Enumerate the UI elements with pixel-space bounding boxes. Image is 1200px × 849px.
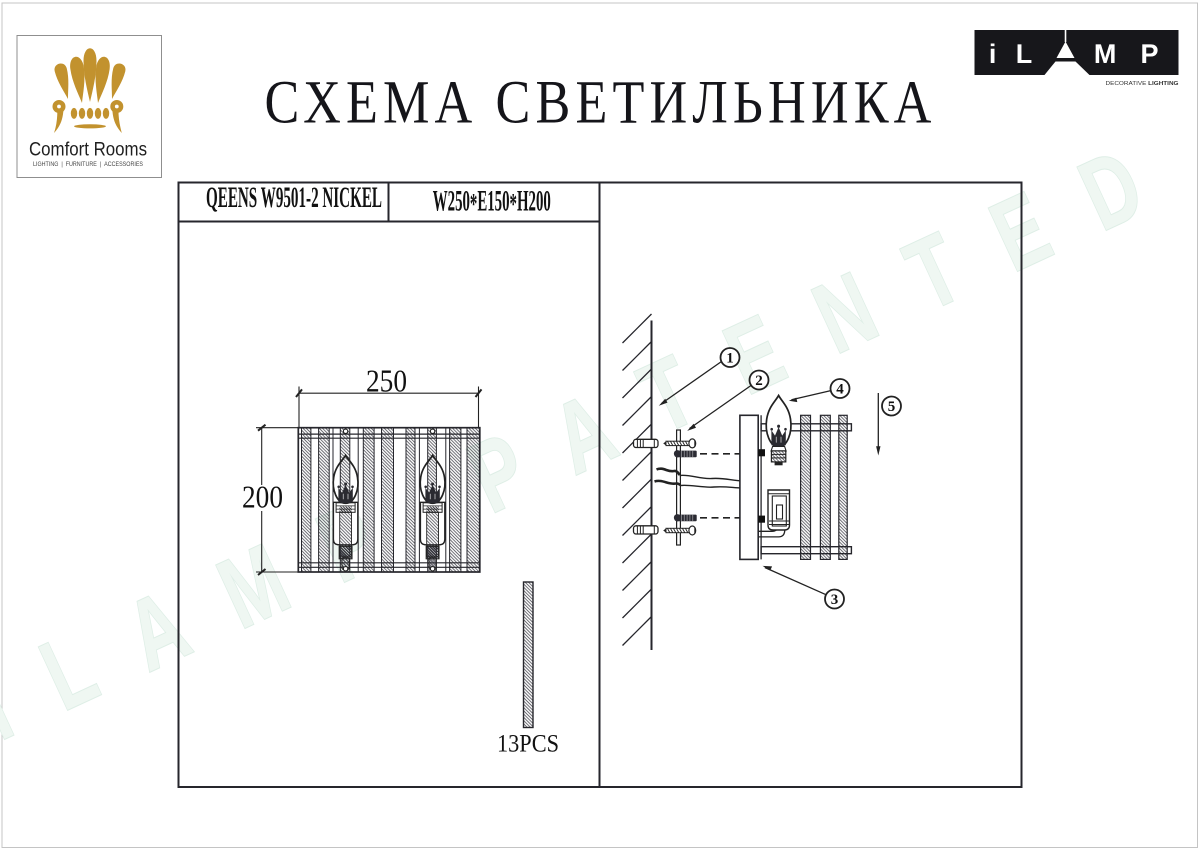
svg-text:13PCS: 13PCS (497, 729, 559, 758)
svg-text:W250*E150*H200: W250*E150*H200 (433, 185, 551, 221)
svg-text:Comfort Rooms: Comfort Rooms (29, 140, 147, 161)
svg-text:LIGHTING | FURNITURE | ACC: LIGHTING | FURNITURE | ACCESSORIES (33, 161, 143, 168)
svg-text:L: L (1016, 39, 1033, 69)
svg-text:200: 200 (242, 479, 283, 515)
svg-text:5: 5 (888, 399, 896, 415)
svg-text:3: 3 (831, 592, 839, 608)
svg-text:4: 4 (836, 382, 844, 398)
svg-text:QEENS W9501-2 NICKEL: QEENS W9501-2 NICKEL (206, 181, 382, 214)
svg-text:DECORATIVE LIGHTING: DECORATIVE LIGHTING (1106, 81, 1180, 87)
svg-text:1: 1 (726, 351, 734, 367)
svg-text:i: i (989, 39, 997, 69)
svg-text:2: 2 (755, 373, 763, 389)
svg-text:P: P (1140, 39, 1158, 69)
svg-text:M: M (1094, 39, 1117, 69)
svg-text:250: 250 (366, 363, 407, 399)
svg-text:СХЕМА СВЕТИЛЬНИКА: СХЕМА СВЕТИЛЬНИКА (265, 70, 937, 137)
